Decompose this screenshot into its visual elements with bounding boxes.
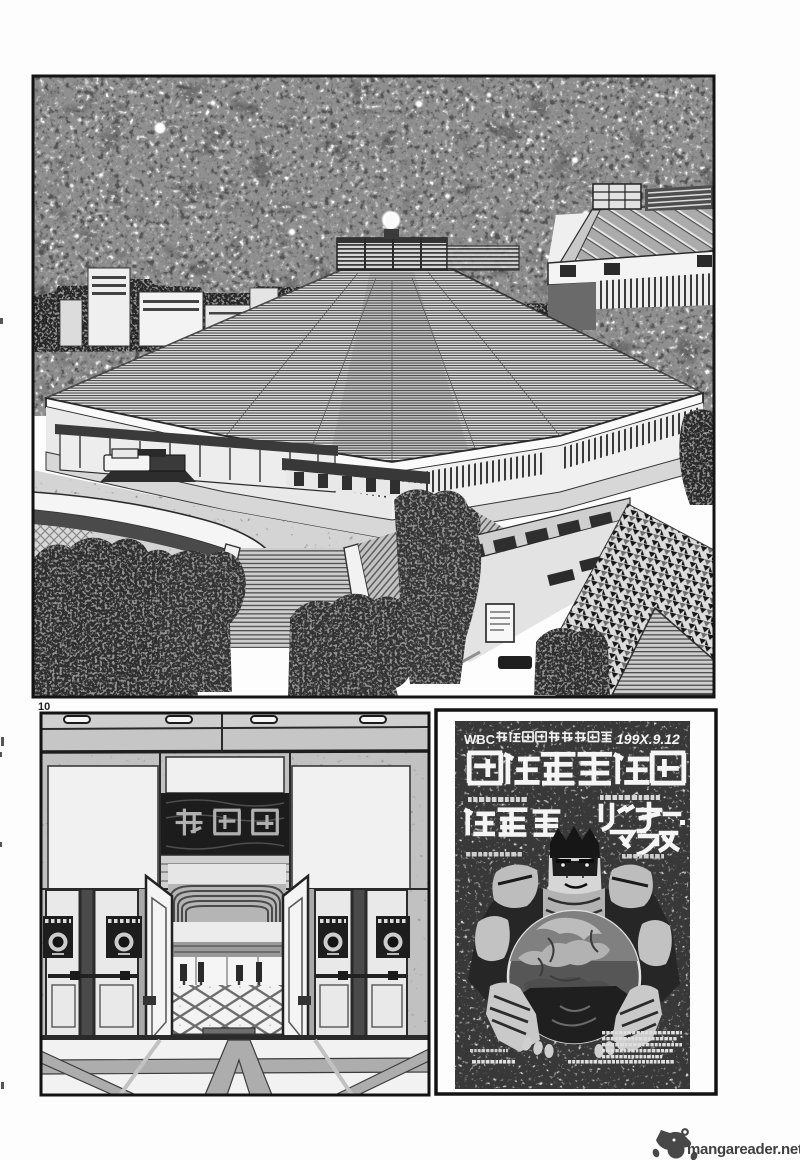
svg-text:mangareader.net: mangareader.net — [687, 1141, 800, 1158]
svg-text:10: 10 — [38, 701, 50, 713]
svg-text:WBC: WBC — [464, 732, 496, 747]
svg-text:199X.9.12: 199X.9.12 — [616, 731, 680, 747]
